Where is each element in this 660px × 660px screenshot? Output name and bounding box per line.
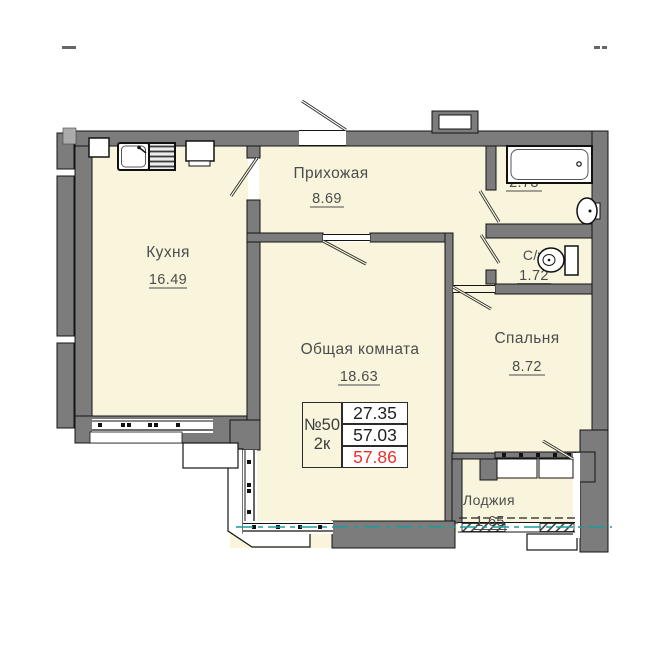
wall-loggia-stub: [480, 459, 497, 480]
kitchen-drainboard: [149, 143, 175, 170]
wall-bath-toilet: [486, 224, 592, 238]
wall-left: [75, 146, 92, 443]
kitchen-balcony-slab: [183, 443, 238, 468]
axis-mark-left: [62, 46, 76, 49]
living-room-area: 18.63: [340, 369, 378, 385]
kitchen-sink: [118, 143, 149, 170]
apartment-number: №50: [304, 416, 340, 435]
floor-plan-drawing: Кухня 16.49 Прихожая 8.69 С/у 2.78 С/у 1…: [0, 0, 660, 660]
loggia-area: 1.65: [475, 514, 505, 530]
wall-bedroom-loggia-thin: [452, 453, 497, 459]
bedroom-area: 8.72: [512, 359, 542, 375]
living-window-left: [243, 450, 257, 523]
kitchen-area: 16.49: [149, 272, 187, 288]
wall-left-cladding-2: [57, 176, 74, 336]
bedroom-label: Спальня: [494, 330, 559, 347]
entrance-door: [299, 101, 346, 146]
kitchen-stove: [186, 141, 214, 166]
area-without-loggia-value: 57.03: [343, 425, 407, 447]
wall-right-lower: [580, 430, 608, 552]
apartment-info-table: №50 2к 27.35 57.03 57.86: [302, 402, 408, 468]
kitchen-corner-duct: [89, 138, 109, 157]
wall-hall-living-b: [370, 233, 453, 242]
bathtub: [507, 146, 592, 183]
total-area-value: 57.86: [343, 447, 407, 467]
apartment-rooms-count: 2к: [314, 435, 330, 454]
wall-toilet-stub: [486, 270, 496, 284]
axis-mark-right-a: [594, 46, 600, 49]
wall-bath-stub: [486, 146, 496, 190]
living-area-value: 27.35: [343, 403, 407, 425]
wall-bedroom-top: [495, 284, 592, 294]
living-room-label: Общая комната: [301, 341, 420, 358]
apartment-areas-cell: 27.35 57.03 57.86: [343, 403, 407, 467]
loggia-label: Лоджия: [463, 492, 515, 508]
axis-mark-right-b: [602, 46, 607, 49]
vent-box-inner: [439, 115, 471, 129]
wall-hall-living-a: [247, 233, 323, 242]
apartment-id-cell: №50 2к: [303, 403, 343, 467]
wall-living-bottom-right: [332, 521, 455, 548]
wall-right: [592, 131, 608, 430]
axis-marks: [62, 46, 607, 49]
hallway-area: 8.69: [312, 191, 342, 207]
wall-kitchen-hall-stub: [247, 146, 260, 158]
kitchen-label: Кухня: [146, 244, 189, 261]
living-window-bottom: [243, 521, 333, 534]
wall-loggia-left: [452, 453, 462, 523]
corner-trim: [63, 128, 76, 144]
toilet: [538, 246, 578, 275]
floor-plan-page: Кухня 16.49 Прихожая 8.69 С/у 2.78 С/у 1…: [0, 0, 660, 660]
wall-left-cladding-3: [57, 343, 74, 428]
hallway-label: Прихожая: [293, 165, 368, 182]
loggia-slab: [527, 534, 577, 550]
